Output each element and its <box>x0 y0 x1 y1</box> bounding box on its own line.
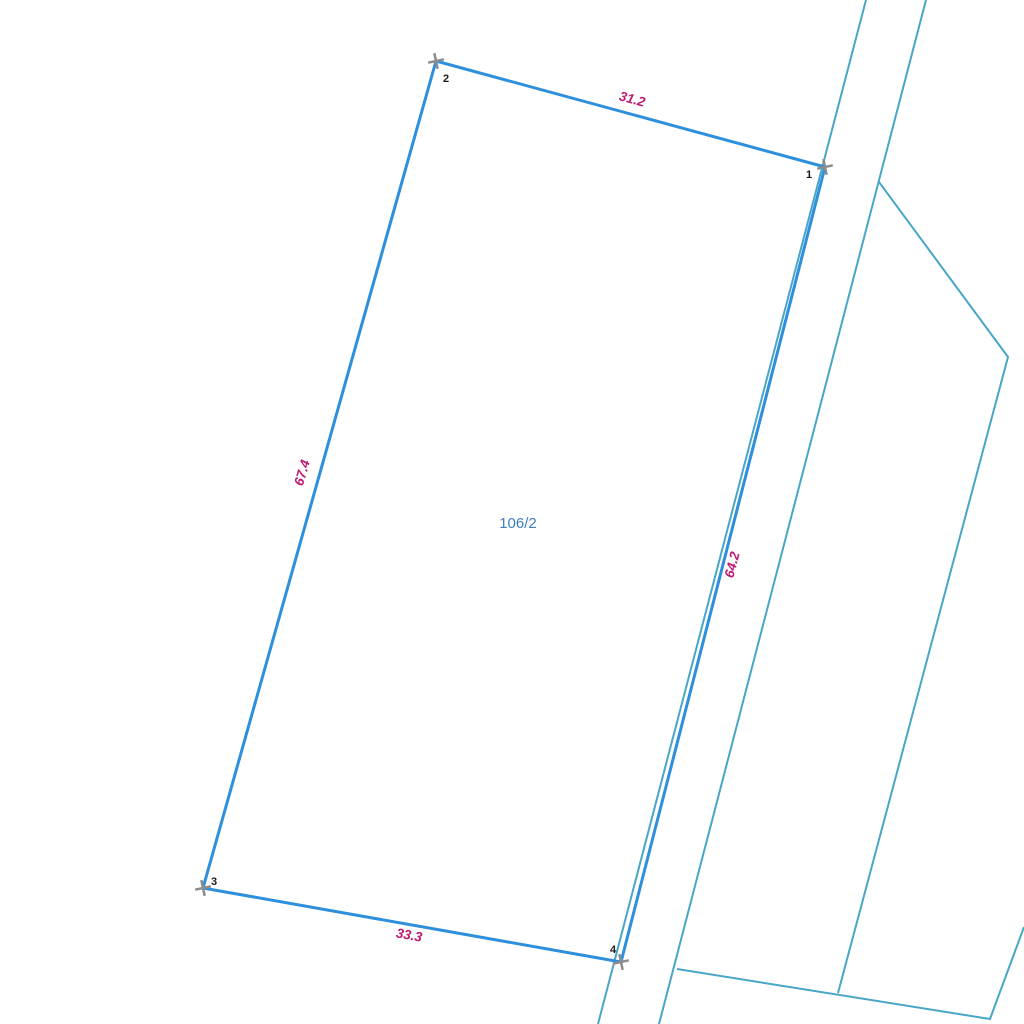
adjacent-boundary-line-2[interactable] <box>659 0 926 1024</box>
parcel-edge-2-1[interactable] <box>436 61 825 167</box>
adjacent-boundary-line-1[interactable] <box>598 0 866 1024</box>
vertex-number-label-3: 3 <box>211 876 217 888</box>
edge-length-label-2-1: 31.2 <box>618 88 648 109</box>
vertex-marker-2[interactable] <box>427 52 446 71</box>
adjacent-boundary-line-3[interactable] <box>838 182 1008 993</box>
vertex-number-label-4: 4 <box>610 944 617 956</box>
edge-length-label-3-4: 33.3 <box>395 925 424 944</box>
parcel-edge-2-3[interactable] <box>203 61 436 888</box>
map-canvas[interactable]: 123431.267.464.233.3106/2 <box>0 0 1024 1024</box>
vertex-number-label-1: 1 <box>806 169 812 181</box>
edge-length-label-2-3: 67.4 <box>291 458 313 488</box>
vertex-number-label-2: 2 <box>443 73 449 85</box>
parcel-edge-1-4[interactable] <box>621 167 825 962</box>
parcel-number-label: 106/2 <box>499 515 537 532</box>
parcel-edge-3-4[interactable] <box>203 888 621 962</box>
adjacent-boundary-line-4[interactable] <box>677 927 1024 1019</box>
